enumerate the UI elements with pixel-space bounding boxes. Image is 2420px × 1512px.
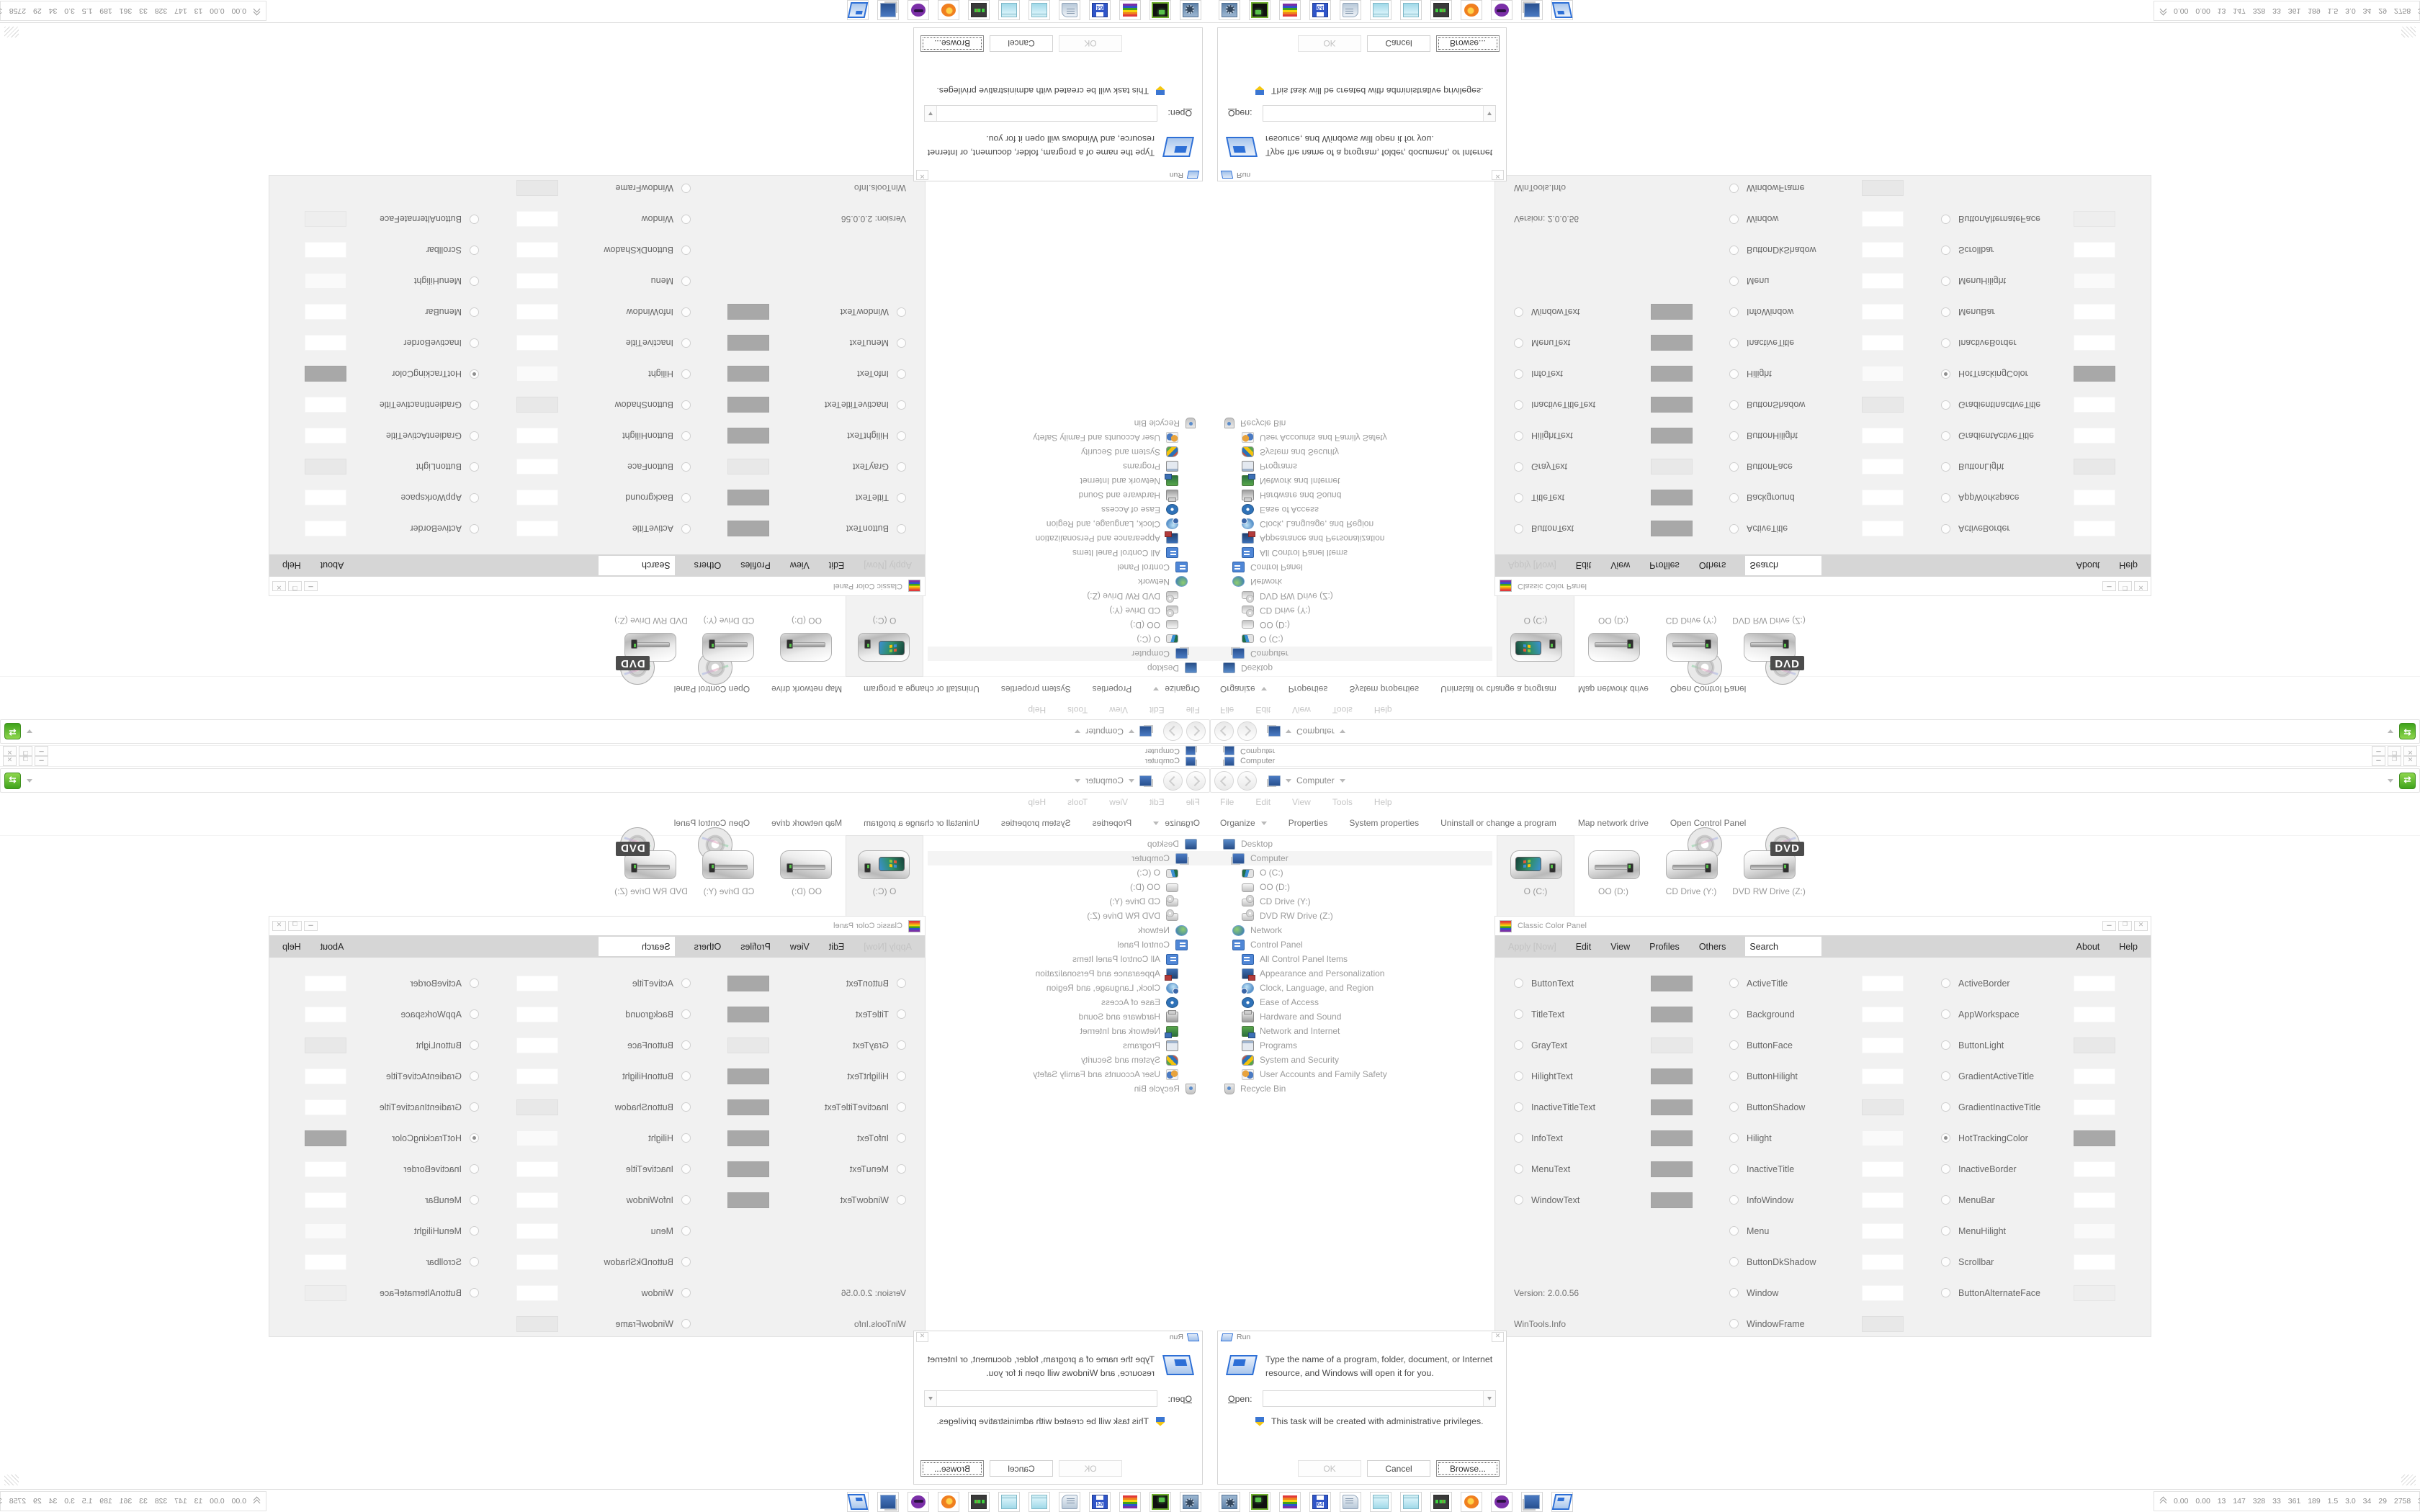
taskbar-button-system-settings[interactable]	[1180, 1492, 1201, 1512]
tree-item-desktop[interactable]: Desktop	[1210, 837, 1492, 851]
tree-item-clock-language-and-region[interactable]: Clock, Language, and Region	[1210, 981, 1492, 995]
explorer-title-bar[interactable]: Computer	[1210, 745, 2420, 756]
back-button[interactable]	[1186, 771, 1206, 791]
menu-item-help[interactable]: Help	[1028, 705, 1046, 715]
radio-button[interactable]	[1514, 1040, 1523, 1050]
color-swatch[interactable]	[516, 1285, 558, 1301]
tree-item-all-control-panel-items[interactable]: All Control Panel Items	[928, 546, 1210, 560]
radio-button[interactable]	[681, 369, 691, 379]
command-system-properties[interactable]: System properties	[1001, 684, 1071, 694]
color-swatch[interactable]	[305, 1223, 346, 1239]
search-input[interactable]: Search	[599, 556, 675, 575]
radio-button[interactable]	[1514, 1164, 1523, 1174]
radio-button[interactable]	[470, 1133, 479, 1143]
radio-button[interactable]	[897, 369, 906, 379]
tree-item-cd-drive-y[interactable]: CD Drive (Y:)	[928, 894, 1210, 909]
radio-button[interactable]	[681, 1040, 691, 1050]
radio-button[interactable]	[897, 431, 906, 441]
command-map-network-drive[interactable]: Map network drive	[1578, 684, 1649, 694]
radio-button[interactable]	[1941, 215, 1950, 224]
color-swatch[interactable]	[1862, 1038, 1904, 1053]
forward-button[interactable]	[1237, 771, 1257, 791]
command-properties[interactable]: Properties	[1289, 684, 1328, 694]
restore-button[interactable]	[2388, 746, 2401, 756]
tree-item-dvd-rw-drive-z[interactable]: DVD RW Drive (Z:)	[928, 589, 1210, 603]
taskbar-button-resource-monitor[interactable]	[1430, 0, 1452, 20]
radio-button[interactable]	[1729, 1133, 1739, 1143]
color-swatch[interactable]	[2074, 1007, 2115, 1022]
close-icon[interactable]	[916, 1332, 928, 1342]
drive-tile-o-c[interactable]: O (C:)	[846, 595, 923, 677]
ok-button[interactable]: OK	[1298, 1460, 1361, 1477]
color-swatch[interactable]	[1651, 976, 1693, 991]
explorer-title-bar[interactable]: Computer	[0, 745, 1210, 756]
forward-button[interactable]	[1237, 722, 1257, 742]
color-swatch[interactable]	[1862, 1007, 1904, 1022]
color-swatch[interactable]	[1651, 1068, 1693, 1084]
radio-button[interactable]	[1729, 184, 1739, 193]
radio-button[interactable]	[681, 246, 691, 255]
radio-button[interactable]	[1941, 1040, 1950, 1050]
command-open-control-panel[interactable]: Open Control Panel	[674, 684, 750, 694]
color-swatch[interactable]	[2074, 428, 2115, 444]
color-swatch[interactable]	[1862, 212, 1904, 228]
radio-button[interactable]	[897, 1071, 906, 1081]
taskbar-button-run[interactable]	[1551, 0, 1573, 20]
open-combobox[interactable]	[1263, 1390, 1496, 1407]
radio-button[interactable]	[1729, 338, 1739, 348]
color-swatch[interactable]	[516, 1068, 558, 1084]
explorer-title-bar[interactable]: Computer	[0, 756, 1210, 767]
radio-button[interactable]	[1729, 1071, 1739, 1081]
radio-button[interactable]	[1729, 276, 1739, 286]
minimize-button[interactable]	[2102, 921, 2116, 931]
ccp-menu-help[interactable]: Help	[2119, 561, 2138, 571]
refresh-icon[interactable]	[2399, 773, 2416, 789]
drive-tile-cd-drive-y[interactable]: CD Drive (Y:)	[690, 835, 768, 917]
radio-button[interactable]	[1729, 1009, 1739, 1019]
radio-button[interactable]	[470, 307, 479, 317]
tree-item-o-c[interactable]: O (C:)	[1210, 865, 1492, 880]
color-swatch[interactable]	[2074, 1068, 2115, 1084]
address-location[interactable]: Computer	[1085, 775, 1124, 786]
command-open-control-panel[interactable]: Open Control Panel	[1670, 818, 1746, 828]
color-swatch[interactable]	[305, 366, 346, 382]
radio-button[interactable]	[897, 524, 906, 534]
tree-item-hardware-and-sound[interactable]: Hardware and Sound	[928, 1009, 1210, 1024]
command-organize[interactable]: Organize	[1220, 684, 1267, 694]
taskbar-button-firefox[interactable]	[938, 0, 959, 20]
color-swatch[interactable]	[1651, 397, 1693, 413]
drive-tile-oo-d[interactable]: OO (D:)	[768, 835, 846, 917]
menu-item-tools[interactable]: Tools	[1067, 797, 1088, 807]
command-organize[interactable]: Organize	[1153, 818, 1200, 828]
color-swatch[interactable]	[727, 1007, 769, 1022]
radio-button[interactable]	[1729, 369, 1739, 379]
tree-item-cd-drive-y[interactable]: CD Drive (Y:)	[1210, 603, 1492, 618]
tree-item-user-accounts-and-family-safety[interactable]: User Accounts and Family Safety	[1210, 431, 1492, 445]
ccp-menu-view[interactable]: View	[1610, 942, 1630, 952]
taskbar-button-purple-avatar-app[interactable]	[1491, 0, 1512, 20]
tree-item-dvd-rw-drive-z[interactable]: DVD RW Drive (Z:)	[928, 909, 1210, 923]
run-title-bar[interactable]: Run	[914, 169, 1202, 181]
tree-item-hardware-and-sound[interactable]: Hardware and Sound	[928, 488, 1210, 503]
ccp-menu-edit[interactable]: Edit	[1576, 561, 1592, 571]
tree-item-programs[interactable]: Programs	[928, 1038, 1210, 1053]
ccp-menu-profiles[interactable]: Profiles	[1649, 561, 1680, 571]
ccp-title-bar[interactable]: Classic Color Panel	[1495, 917, 2151, 935]
command-uninstall-or-change-a-program[interactable]: Uninstall or change a program	[864, 818, 980, 828]
radio-button[interactable]	[681, 1257, 691, 1266]
address-breadcrumb[interactable]: Computer	[1268, 775, 1345, 786]
radio-button[interactable]	[681, 978, 691, 988]
command-organize[interactable]: Organize	[1220, 818, 1267, 828]
menu-item-tools[interactable]: Tools	[1332, 705, 1353, 715]
radio-button[interactable]	[681, 338, 691, 348]
tree-item-programs[interactable]: Programs	[1210, 1038, 1492, 1053]
color-swatch[interactable]	[2074, 490, 2115, 506]
color-swatch[interactable]	[2074, 212, 2115, 228]
taskbar-button-purple-avatar-app[interactable]	[1491, 1492, 1512, 1512]
chevron-up-icon[interactable]	[254, 1498, 260, 1505]
radio-button[interactable]	[897, 493, 906, 503]
radio-button[interactable]	[681, 1102, 691, 1112]
run-title-bar[interactable]: Run	[1218, 169, 1506, 181]
color-swatch[interactable]	[516, 366, 558, 382]
drive-tile-o-c[interactable]: O (C:)	[1497, 835, 1574, 917]
color-swatch[interactable]	[516, 243, 558, 258]
color-swatch[interactable]	[516, 1099, 558, 1115]
command-properties[interactable]: Properties	[1093, 818, 1132, 828]
color-swatch[interactable]	[727, 490, 769, 506]
menu-item-view[interactable]: View	[1109, 797, 1128, 807]
color-swatch[interactable]	[516, 490, 558, 506]
chevron-up-icon[interactable]	[254, 7, 260, 14]
radio-button[interactable]	[681, 1226, 691, 1236]
taskbar-button-resource-monitor[interactable]	[968, 1492, 990, 1512]
radio-button[interactable]	[470, 1071, 479, 1081]
radio-button[interactable]	[1514, 1071, 1523, 1081]
open-input[interactable]	[937, 1391, 1157, 1406]
maximize-button[interactable]	[2118, 921, 2132, 931]
color-swatch[interactable]	[305, 305, 346, 320]
tree-item-network[interactable]: Network	[1210, 575, 1492, 589]
tree-item-hardware-and-sound[interactable]: Hardware and Sound	[1210, 1009, 1492, 1024]
radio-button[interactable]	[897, 462, 906, 472]
radio-button[interactable]	[1729, 246, 1739, 255]
chevron-down-icon[interactable]	[1075, 730, 1080, 734]
command-map-network-drive[interactable]: Map network drive	[771, 684, 842, 694]
radio-button[interactable]	[1514, 431, 1523, 441]
command-map-network-drive[interactable]: Map network drive	[1578, 818, 1649, 828]
radio-button[interactable]	[1729, 307, 1739, 317]
color-swatch[interactable]	[1862, 428, 1904, 444]
ccp-menu-about[interactable]: About	[2076, 561, 2100, 571]
restore-button[interactable]	[2388, 756, 2401, 766]
color-swatch[interactable]	[305, 1192, 346, 1208]
ok-button[interactable]: OK	[1059, 35, 1122, 52]
color-swatch[interactable]	[516, 1130, 558, 1146]
color-swatch[interactable]	[305, 1007, 346, 1022]
radio-button[interactable]	[1729, 1040, 1739, 1050]
back-button[interactable]	[1214, 722, 1234, 742]
run-title-bar[interactable]: Run	[1218, 1331, 1506, 1343]
taskbar-button-hardware-monitor[interactable]	[1249, 1492, 1270, 1512]
radio-button[interactable]	[897, 1102, 906, 1112]
color-swatch[interactable]	[305, 1285, 346, 1301]
address-breadcrumb[interactable]: Computer	[1075, 726, 1152, 737]
close-button[interactable]	[2134, 581, 2148, 591]
color-swatch[interactable]	[1862, 397, 1904, 413]
browse-button[interactable]: Browse...	[1436, 35, 1500, 52]
color-swatch[interactable]	[727, 1099, 769, 1115]
color-swatch[interactable]	[1651, 1007, 1693, 1022]
menu-item-edit[interactable]: Edit	[1149, 797, 1165, 807]
tree-item-computer[interactable]: Computer	[1210, 851, 1492, 865]
color-swatch[interactable]	[727, 366, 769, 382]
color-swatch[interactable]	[1651, 1099, 1693, 1115]
color-swatch[interactable]	[305, 521, 346, 537]
run-title-bar[interactable]: Run	[914, 1331, 1202, 1343]
color-swatch[interactable]	[1651, 428, 1693, 444]
ccp-title-bar[interactable]: Classic Color Panel	[269, 917, 925, 935]
ccp-menu-help[interactable]: Help	[2119, 942, 2138, 952]
menu-item-help[interactable]: Help	[1374, 797, 1392, 807]
radio-button[interactable]	[1729, 978, 1739, 988]
taskbar-button-run[interactable]	[847, 1492, 869, 1512]
tree-item-user-accounts-and-family-safety[interactable]: User Accounts and Family Safety	[928, 431, 1210, 445]
minimize-button[interactable]	[2102, 581, 2116, 591]
apply-now-menu-item[interactable]: Apply [Now]	[1508, 942, 1556, 952]
radio-button[interactable]	[681, 1319, 691, 1328]
radio-button[interactable]	[1729, 1195, 1739, 1205]
maximize-button[interactable]	[2118, 581, 2132, 591]
radio-button[interactable]	[1729, 1226, 1739, 1236]
address-history-dropdown-icon[interactable]	[2388, 730, 2393, 734]
color-swatch[interactable]	[305, 1099, 346, 1115]
refresh-icon[interactable]	[2399, 724, 2416, 740]
tree-item-network-and-internet[interactable]: Network and Internet	[928, 474, 1210, 488]
color-swatch[interactable]	[1651, 490, 1693, 506]
ok-button[interactable]: OK	[1059, 1460, 1122, 1477]
color-swatch[interactable]	[1651, 1161, 1693, 1177]
color-swatch[interactable]	[305, 1068, 346, 1084]
tree-item-o-c[interactable]: O (C:)	[928, 632, 1210, 647]
tree-item-system-and-security[interactable]: System and Security	[928, 1053, 1210, 1067]
taskbar-button-firefox[interactable]	[938, 1492, 959, 1512]
refresh-icon[interactable]	[4, 773, 21, 789]
command-properties[interactable]: Properties	[1289, 818, 1328, 828]
tree-item-oo-d[interactable]: OO (D:)	[1210, 618, 1492, 632]
taskbar-button-firefox[interactable]	[1461, 1492, 1482, 1512]
ccp-menu-profiles[interactable]: Profiles	[740, 561, 771, 571]
radio-button[interactable]	[681, 462, 691, 472]
taskbar-button-system-settings[interactable]	[1219, 1492, 1240, 1512]
tree-item-control-panel[interactable]: Control Panel	[1210, 560, 1492, 575]
color-swatch[interactable]	[1651, 366, 1693, 382]
taskbar-button-hardware-monitor[interactable]	[1149, 0, 1171, 20]
menu-item-file[interactable]: File	[1220, 797, 1234, 807]
radio-button[interactable]	[1941, 1102, 1950, 1112]
radio-button[interactable]	[681, 493, 691, 503]
ccp-menu-edit[interactable]: Edit	[829, 561, 845, 571]
address-breadcrumb[interactable]: Computer	[1075, 775, 1152, 786]
tree-item-programs[interactable]: Programs	[928, 459, 1210, 474]
taskbar-button-run[interactable]	[1551, 1492, 1573, 1512]
back-button[interactable]	[1186, 722, 1206, 742]
browse-button[interactable]: Browse...	[920, 35, 984, 52]
radio-button[interactable]	[470, 493, 479, 503]
radio-button[interactable]	[897, 307, 906, 317]
command-map-network-drive[interactable]: Map network drive	[771, 818, 842, 828]
radio-button[interactable]	[1514, 1195, 1523, 1205]
drive-tile-o-c[interactable]: O (C:)	[1497, 595, 1574, 677]
taskbar-button-hardware-monitor[interactable]	[1249, 0, 1270, 20]
tree-item-appearance-and-personalization[interactable]: Appearance and Personalization	[928, 531, 1210, 546]
radio-button[interactable]	[1941, 1164, 1950, 1174]
color-swatch[interactable]	[1862, 976, 1904, 991]
radio-button[interactable]	[470, 1164, 479, 1174]
drive-tile-oo-d[interactable]: OO (D:)	[768, 595, 846, 677]
tree-item-user-accounts-and-family-safety[interactable]: User Accounts and Family Safety	[1210, 1067, 1492, 1081]
radio-button[interactable]	[470, 431, 479, 441]
radio-button[interactable]	[1514, 462, 1523, 472]
color-swatch[interactable]	[305, 976, 346, 991]
radio-button[interactable]	[1514, 524, 1523, 534]
tree-item-recycle-bin[interactable]: Recycle Bin	[1210, 1081, 1492, 1096]
color-swatch[interactable]	[1862, 1254, 1904, 1270]
tree-item-computer[interactable]: Computer	[1210, 647, 1492, 661]
radio-button[interactable]	[1729, 1319, 1739, 1328]
color-swatch[interactable]	[1862, 243, 1904, 258]
minimize-button[interactable]	[35, 746, 48, 756]
menu-item-view[interactable]: View	[1292, 797, 1311, 807]
radio-button[interactable]	[897, 1164, 906, 1174]
taskbar-button-classic-color-panel[interactable]	[1119, 1492, 1141, 1512]
open-input[interactable]	[1263, 1391, 1483, 1406]
ccp-menu-about[interactable]: About	[321, 561, 344, 571]
chevron-down-icon[interactable]	[1286, 730, 1291, 734]
radio-button[interactable]	[470, 524, 479, 534]
taskbar-button-system-settings[interactable]	[1180, 0, 1201, 20]
color-swatch[interactable]	[727, 1038, 769, 1053]
maximize-button[interactable]	[288, 581, 302, 591]
drive-tile-cd-drive-y[interactable]: CD Drive (Y:)	[1652, 595, 1730, 677]
taskbar-button-system-settings[interactable]	[1219, 0, 1240, 20]
radio-button[interactable]	[470, 1195, 479, 1205]
color-swatch[interactable]	[2074, 1099, 2115, 1115]
ccp-menu-help[interactable]: Help	[282, 561, 301, 571]
radio-button[interactable]	[1514, 978, 1523, 988]
tree-item-oo-d[interactable]: OO (D:)	[1210, 880, 1492, 894]
ccp-title-bar[interactable]: Classic Color Panel	[1495, 577, 2151, 595]
tree-item-cd-drive-y[interactable]: CD Drive (Y:)	[1210, 894, 1492, 909]
color-swatch[interactable]	[1651, 1130, 1693, 1146]
resize-grip-icon[interactable]	[4, 1475, 19, 1485]
radio-button[interactable]	[1941, 307, 1950, 317]
drive-tile-cd-drive-y[interactable]: CD Drive (Y:)	[690, 595, 768, 677]
tree-item-clock-language-and-region[interactable]: Clock, Language, and Region	[928, 517, 1210, 531]
taskbar-button-notepad[interactable]	[1028, 1492, 1050, 1512]
color-swatch[interactable]	[2074, 305, 2115, 320]
tree-item-recycle-bin[interactable]: Recycle Bin	[928, 1081, 1210, 1096]
radio-button[interactable]	[1729, 462, 1739, 472]
chevron-up-icon[interactable]	[2160, 1498, 2166, 1505]
tree-item-ease-of-access[interactable]: Ease of Access	[1210, 503, 1492, 517]
color-swatch[interactable]	[2074, 1130, 2115, 1146]
radio-button[interactable]	[1514, 493, 1523, 503]
tree-item-all-control-panel-items[interactable]: All Control Panel Items	[1210, 952, 1492, 966]
tree-item-control-panel[interactable]: Control Panel	[928, 937, 1210, 952]
color-swatch[interactable]	[727, 976, 769, 991]
color-swatch[interactable]	[1862, 274, 1904, 289]
tree-item-network-and-internet[interactable]: Network and Internet	[928, 1024, 1210, 1038]
resize-grip-icon[interactable]	[2401, 27, 2416, 37]
tree-item-programs[interactable]: Programs	[1210, 459, 1492, 474]
tree-item-system-and-security[interactable]: System and Security	[1210, 1053, 1492, 1067]
close-button[interactable]	[3, 756, 17, 766]
taskbar-button-purple-avatar-app[interactable]	[907, 0, 929, 20]
radio-button[interactable]	[897, 1009, 906, 1019]
taskbar-button-scroll-viewer[interactable]	[1340, 1492, 1361, 1512]
ccp-menu-about[interactable]: About	[2076, 942, 2100, 952]
color-swatch[interactable]	[1651, 521, 1693, 537]
close-button[interactable]	[3, 746, 17, 756]
taskbar-button-notepad[interactable]	[998, 1492, 1020, 1512]
combobox-dropdown-button[interactable]	[1483, 1391, 1495, 1406]
color-swatch[interactable]	[516, 274, 558, 289]
ccp-menu-about[interactable]: About	[321, 942, 344, 952]
taskbar-button-computer[interactable]	[1521, 1492, 1543, 1512]
close-button[interactable]	[272, 921, 286, 931]
color-swatch[interactable]	[727, 459, 769, 475]
tree-item-computer[interactable]: Computer	[928, 851, 1210, 865]
combobox-dropdown-button[interactable]	[925, 106, 937, 121]
radio-button[interactable]	[1941, 524, 1950, 534]
radio-button[interactable]	[1941, 276, 1950, 286]
radio-button[interactable]	[681, 524, 691, 534]
restore-button[interactable]	[19, 746, 32, 756]
ccp-title-bar[interactable]: Classic Color Panel	[269, 577, 925, 595]
color-swatch[interactable]	[1651, 305, 1693, 320]
tree-item-o-c[interactable]: O (C:)	[1210, 632, 1492, 647]
menu-item-edit[interactable]: Edit	[1255, 797, 1270, 807]
color-swatch[interactable]	[1862, 1223, 1904, 1239]
command-uninstall-or-change-a-program[interactable]: Uninstall or change a program	[1440, 818, 1556, 828]
chevron-down-icon[interactable]	[1286, 779, 1291, 783]
tree-item-desktop[interactable]: Desktop	[928, 661, 1210, 675]
minimize-button[interactable]	[304, 581, 318, 591]
color-swatch[interactable]	[516, 428, 558, 444]
radio-button[interactable]	[681, 1164, 691, 1174]
address-history-dropdown-icon[interactable]	[27, 779, 32, 783]
combobox-dropdown-button[interactable]	[925, 1391, 937, 1406]
refresh-icon[interactable]	[4, 724, 21, 740]
color-swatch[interactable]	[1862, 1099, 1904, 1115]
radio-button[interactable]	[1729, 215, 1739, 224]
ok-button[interactable]: OK	[1298, 35, 1361, 52]
color-swatch[interactable]	[305, 490, 346, 506]
taskbar-button-purple-avatar-app[interactable]	[907, 1492, 929, 1512]
command-open-control-panel[interactable]: Open Control Panel	[674, 818, 750, 828]
ccp-menu-edit[interactable]: Edit	[1576, 942, 1592, 952]
tree-item-network[interactable]: Network	[928, 923, 1210, 937]
radio-button[interactable]	[681, 431, 691, 441]
drive-tile-oo-d[interactable]: OO (D:)	[1574, 835, 1652, 917]
taskbar-button-resource-monitor[interactable]	[1430, 1492, 1452, 1512]
tree-item-system-and-security[interactable]: System and Security	[1210, 445, 1492, 459]
radio-button[interactable]	[1729, 493, 1739, 503]
